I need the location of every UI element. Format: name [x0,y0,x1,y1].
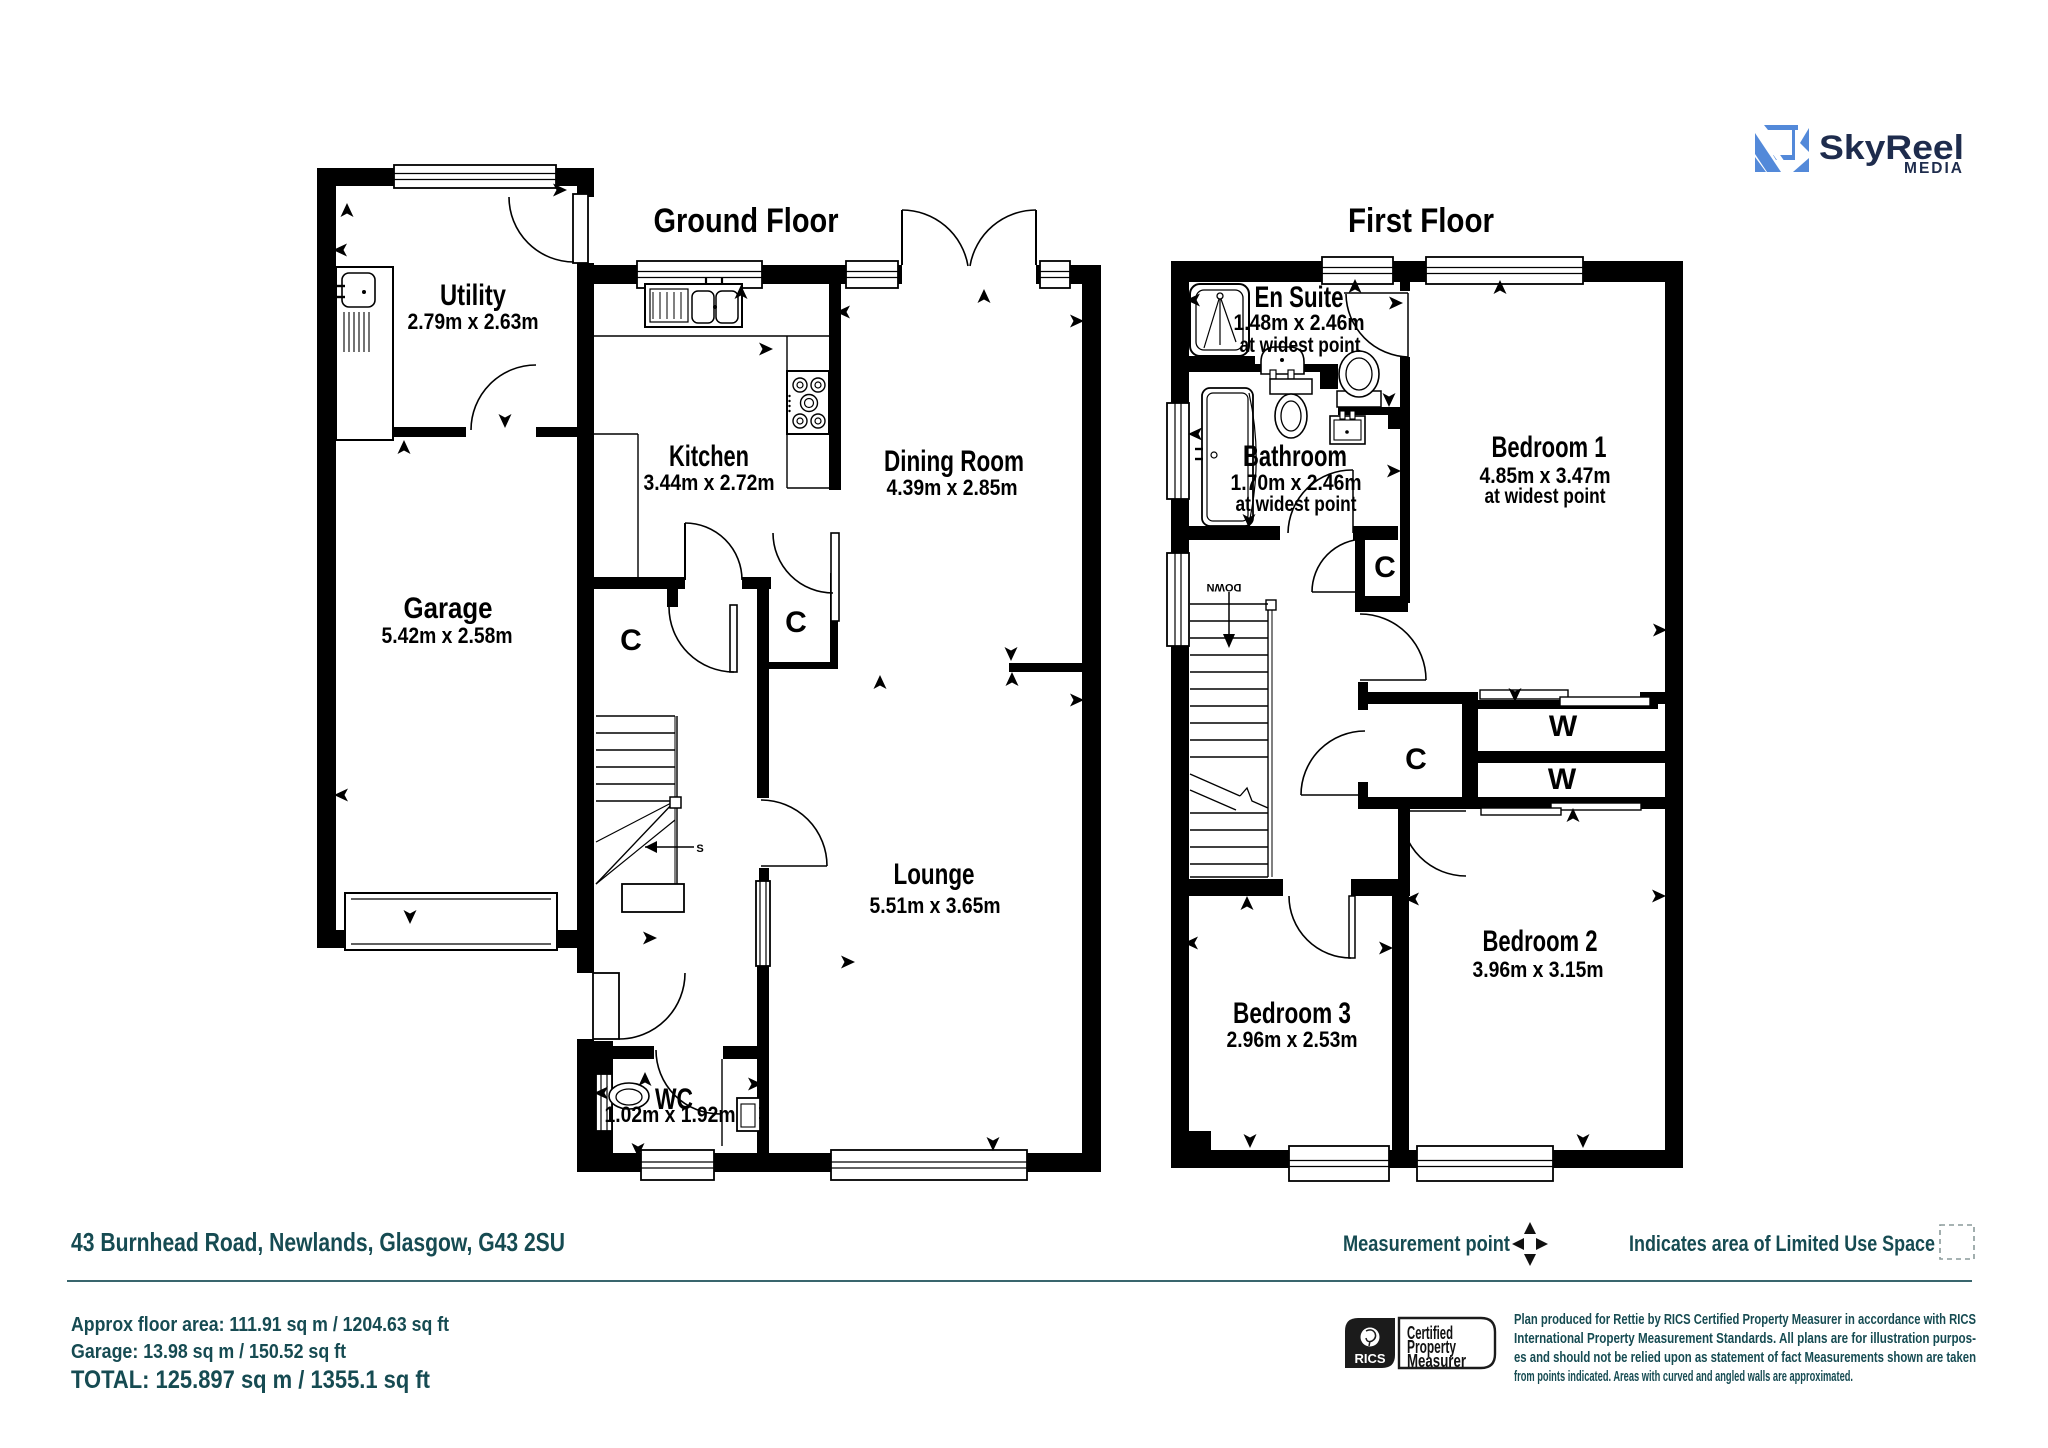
svg-text:First Floor: First Floor [1348,202,1494,240]
svg-text:from points indicated. Areas w: from points indicated. Areas with curved… [1514,1368,1853,1385]
svg-text:Bathroom: Bathroom [1243,440,1347,473]
svg-text:at widest point: at widest point [1240,334,1361,357]
svg-text:TOTAL: 125.897 sq m / 1355.1 s: TOTAL: 125.897 sq m / 1355.1 sq ft [71,1366,431,1394]
svg-text:Indicates area of Limited Use: Indicates area of Limited Use Space [1629,1231,1935,1256]
svg-text:Kitchen: Kitchen [669,440,749,473]
svg-text:C: C [1374,551,1396,584]
svg-text:2.79m x 2.63m: 2.79m x 2.63m [408,309,539,334]
svg-text:Bedroom 3: Bedroom 3 [1233,997,1351,1030]
svg-text:5.51m x 3.65m: 5.51m x 3.65m [870,893,1001,918]
svg-text:C: C [1405,743,1427,776]
svg-text:S: S [696,843,703,855]
svg-text:RICS: RICS [1354,1351,1385,1366]
svg-text:4.39m x 2.85m: 4.39m x 2.85m [887,475,1018,500]
svg-text:Bedroom 2: Bedroom 2 [1483,925,1598,958]
svg-text:Lounge: Lounge [894,858,975,891]
svg-text:DOWN: DOWN [1207,581,1242,593]
svg-text:at widest point: at widest point [1485,485,1606,508]
svg-text:1.02m x 1.92m: 1.02m x 1.92m [605,1102,736,1127]
svg-text:Ground Floor: Ground Floor [654,202,839,240]
svg-text:Measurer: Measurer [1407,1351,1466,1371]
svg-text:C: C [620,624,642,657]
svg-text:5.42m x 2.58m: 5.42m x 2.58m [382,623,513,648]
svg-text:C: C [785,606,807,639]
svg-text:Dining Room: Dining Room [884,445,1024,478]
svg-text:3.44m x 2.72m: 3.44m x 2.72m [644,470,775,495]
svg-text:1.48m x 2.46m: 1.48m x 2.46m [1234,310,1365,335]
svg-text:Utility: Utility [440,279,506,312]
svg-text:MEDIA: MEDIA [1904,160,1964,177]
svg-text:International Property Measur: International Property Measurement Stand… [1514,1330,1976,1347]
svg-text:Bedroom 1: Bedroom 1 [1492,431,1607,464]
svg-text:at widest point: at widest point [1236,493,1357,516]
svg-text:W: W [1548,763,1577,796]
svg-text:Garage: 13.98 sq m / 150.52 sq: Garage: 13.98 sq m / 150.52 sq ft [71,1340,346,1363]
svg-text:3.96m x 3.15m: 3.96m x 3.15m [1473,957,1604,982]
svg-text:2.96m x 2.53m: 2.96m x 2.53m [1227,1027,1358,1052]
svg-text:Plan produced for Rettie by RI: Plan produced for Rettie by RICS Certifi… [1514,1311,1976,1328]
svg-text:Garage: Garage [404,592,493,625]
svg-text:Approx floor area: 111.91 sq m: Approx floor area: 111.91 sq m / 1204.63… [71,1313,449,1336]
svg-text:1.70m x 2.46m: 1.70m x 2.46m [1231,470,1362,495]
svg-text:43 Burnhead Road, Newlands, Gl: 43 Burnhead Road, Newlands, Glasgow, G43… [71,1227,565,1257]
svg-text:es and should not be relied up: es and should not be relied upon as stat… [1514,1349,1976,1366]
svg-text:Measurement point: Measurement point [1343,1231,1511,1256]
svg-text:W: W [1549,710,1578,743]
